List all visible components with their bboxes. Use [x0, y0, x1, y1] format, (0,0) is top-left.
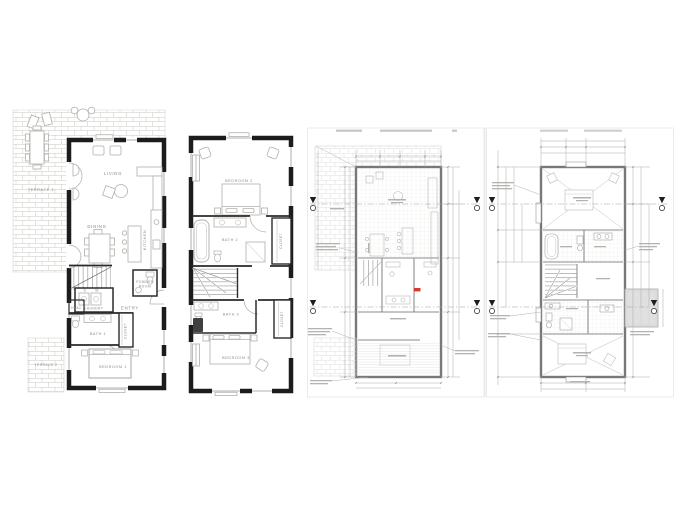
sheet-second-floor-sketch: BEDROOM 2 BATH 2 CLOSET: [188, 133, 294, 396]
closet1-label: CLOSET: [124, 323, 128, 339]
terrace2-label: TERRACE 2: [35, 363, 58, 367]
cad-dormer: [625, 289, 663, 335]
bedroom2-label: BEDROOM 2: [225, 179, 253, 183]
bath3-label: BATH 3: [223, 313, 239, 317]
bedroom1-label: BEDROOM 1: [99, 365, 127, 369]
powder-label-1: POWDER: [136, 280, 154, 284]
dining-furniture: [85, 230, 115, 268]
terrace2: TERRACE 2: [28, 338, 64, 392]
hvac-label: HVAC: [71, 306, 82, 310]
closet-lower-label: CLOSET: [280, 311, 284, 327]
terrace1-label: TERRACE 1: [28, 188, 54, 192]
shower-dark: [193, 318, 203, 332]
washer-label: W: [95, 289, 99, 293]
bath2-label: BATH 2: [222, 238, 238, 242]
powder-room: POWDER ROOM: [133, 270, 157, 296]
dining-label: DINING: [87, 224, 106, 229]
dryer-label: D: [84, 289, 87, 293]
sheet4-header-text: [540, 130, 622, 132]
living-label: LIVING: [104, 171, 122, 176]
bedroom1: BEDROOM 1: [82, 349, 139, 378]
entry-label: ENTRY: [121, 306, 139, 311]
sheet-first-floor-cad: [308, 128, 485, 397]
red-highlight: [414, 288, 421, 291]
bedroom3-label: BEDROOM 3: [222, 356, 250, 360]
powder-label-2: ROOM: [139, 285, 151, 289]
plans-drawing: TERRACE 1: [0, 0, 680, 510]
floor1-stairs: [69, 266, 112, 291]
floor-plans-canvas: TERRACE 1: [0, 0, 680, 510]
bath1-label: BATH 1: [90, 332, 106, 336]
sheet-second-floor-cad: [485, 128, 674, 397]
cad-floor2-stairs: [545, 264, 577, 298]
closet-lower: CLOSET: [274, 300, 291, 338]
floor2-stairs: [193, 268, 238, 298]
closet-upper: CLOSET: [272, 218, 291, 264]
sheet-first-floor-sketch: TERRACE 1: [13, 107, 167, 393]
closet-floor1: CLOSET: [119, 313, 133, 347]
closet-upper-label: CLOSET: [279, 233, 283, 249]
sheet3-header-text: [336, 130, 457, 132]
cad-bedroom-floor: [358, 341, 439, 375]
laundry-label: LAUNDRY: [85, 307, 104, 311]
kitchen-label: KITCHEN: [143, 230, 147, 251]
